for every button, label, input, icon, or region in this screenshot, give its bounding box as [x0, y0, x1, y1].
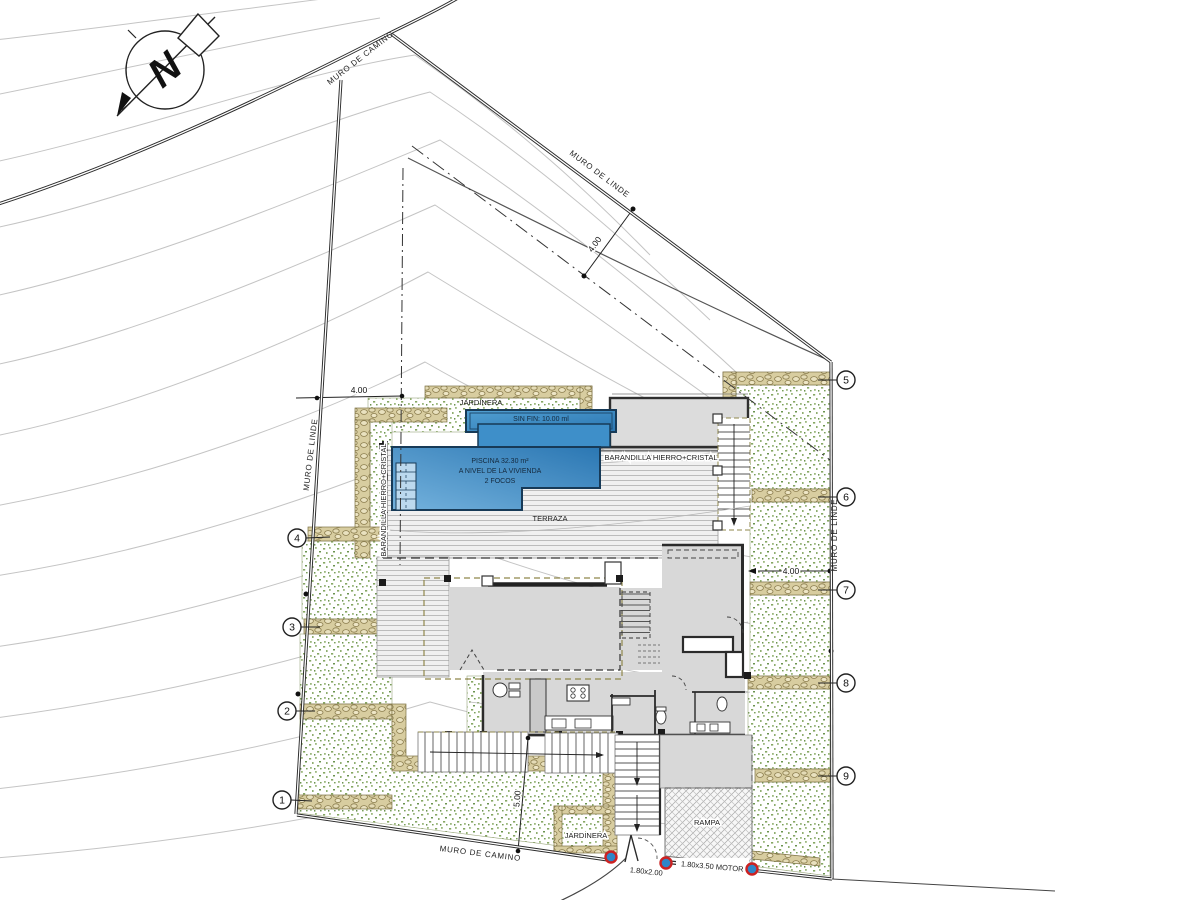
label-gate-pedestrian: 1.80x2.00 — [629, 865, 663, 877]
terrace-stair — [713, 414, 750, 530]
svg-text:8: 8 — [843, 678, 849, 690]
north-letter: N — [140, 43, 191, 96]
svg-text:4: 4 — [294, 533, 300, 545]
dim-setback-right: 4.00 — [783, 566, 800, 576]
svg-text:1: 1 — [279, 795, 285, 807]
bottom-stairs — [418, 732, 618, 773]
site-plan-drawing: MURO DE CAMINO MURO DE LINDE MURO DE LIN… — [0, 0, 1200, 900]
dim-setback-topright: 4.00 — [586, 234, 604, 253]
pool-steps — [396, 463, 416, 510]
gate-stair — [615, 735, 660, 835]
dim-setback-left: 4.00 — [351, 385, 368, 395]
svg-text:2: 2 — [284, 706, 290, 718]
wall-label-camino-top: MURO DE CAMINO — [325, 29, 395, 86]
svg-text:7: 7 — [843, 585, 849, 597]
label-rampa: RAMPA — [694, 818, 720, 827]
label-piscina-3: 2 FOCOS — [485, 478, 516, 485]
label-jardinera-bottom: JARDINERA — [565, 831, 608, 840]
label-terraza: TERRAZA — [532, 514, 567, 523]
dim-setback-bottom: 5.00 — [511, 790, 522, 808]
label-piscina-1: PISCINA 32.30 m² — [471, 458, 529, 465]
svg-text:3: 3 — [289, 622, 295, 634]
wall-label-linde-right: MURO DE LINDE — [830, 499, 839, 572]
north-arrow: N — [117, 14, 219, 116]
label-jardinera-top: JARDINERA — [460, 398, 503, 407]
label-piscina-2: A NIVEL DE LA VIVIENDA — [459, 468, 542, 475]
label-barandilla-left: BARANDILLA HIERRO+CRISTAL — [379, 443, 388, 556]
svg-text:9: 9 — [843, 771, 849, 783]
svg-text:6: 6 — [843, 492, 849, 504]
svg-text:5: 5 — [843, 375, 849, 387]
label-barandilla-right: BARANDILLA HIERRO+CRISTAL — [604, 453, 717, 462]
site-plan-page: MURO DE CAMINO MURO DE LINDE MURO DE LIN… — [0, 0, 1200, 900]
label-sinfin: SIN FIN: 10.00 ml — [513, 416, 569, 423]
